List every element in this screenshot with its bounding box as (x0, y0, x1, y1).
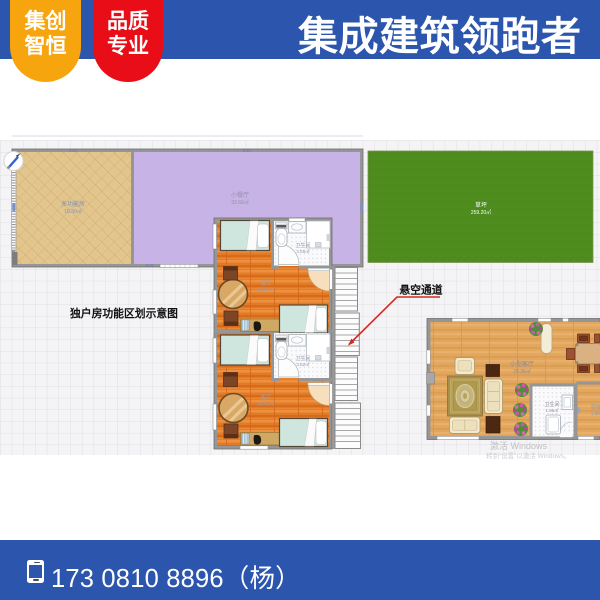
svg-text:悬空通道: 悬空通道 (398, 283, 442, 297)
svg-text:14.63㎡: 14.63㎡ (257, 401, 275, 408)
svg-text:小餐厅: 小餐厅 (231, 191, 249, 199)
svg-text:客厅: 客厅 (260, 279, 272, 287)
svg-text:14.63㎡: 14.63㎡ (257, 287, 275, 294)
svg-text:草坪: 草坪 (475, 201, 487, 209)
svg-text:1.98: 1.98 (591, 411, 600, 416)
svg-text:8.10: 8.10 (243, 148, 252, 153)
svg-text:16.30㎡: 16.30㎡ (64, 208, 82, 215)
svg-text:小型客厅: 小型客厅 (510, 360, 534, 368)
svg-text:259.20㎡: 259.20㎡ (471, 209, 491, 216)
svg-text:激活 Windows: 激活 Windows (490, 440, 548, 451)
svg-text:多功能房: 多功能房 (61, 200, 85, 208)
svg-text:卫生间: 卫生间 (544, 401, 559, 408)
svg-text:转到“设置”以激活 Windows。: 转到“设置”以激活 Windows。 (486, 451, 571, 460)
svg-text:卫生间: 卫生间 (295, 242, 310, 249)
svg-text:客厅: 客厅 (260, 393, 272, 401)
svg-text:33.66㎡: 33.66㎡ (231, 199, 249, 206)
svg-text:3.65㎡: 3.65㎡ (296, 248, 310, 254)
svg-text:1.96㎡: 1.96㎡ (545, 407, 559, 413)
svg-text:独户房功能区划示意图: 独户房功能区划示意图 (70, 306, 178, 320)
svg-text:3.62㎡: 3.62㎡ (296, 361, 310, 367)
svg-text:厨房: 厨房 (591, 404, 600, 411)
svg-text:5.00: 5.00 (146, 263, 155, 268)
svg-text:4.10: 4.10 (69, 148, 78, 153)
svg-text:卫生间: 卫生间 (295, 355, 310, 362)
svg-text:29.36㎡: 29.36㎡ (513, 368, 531, 375)
